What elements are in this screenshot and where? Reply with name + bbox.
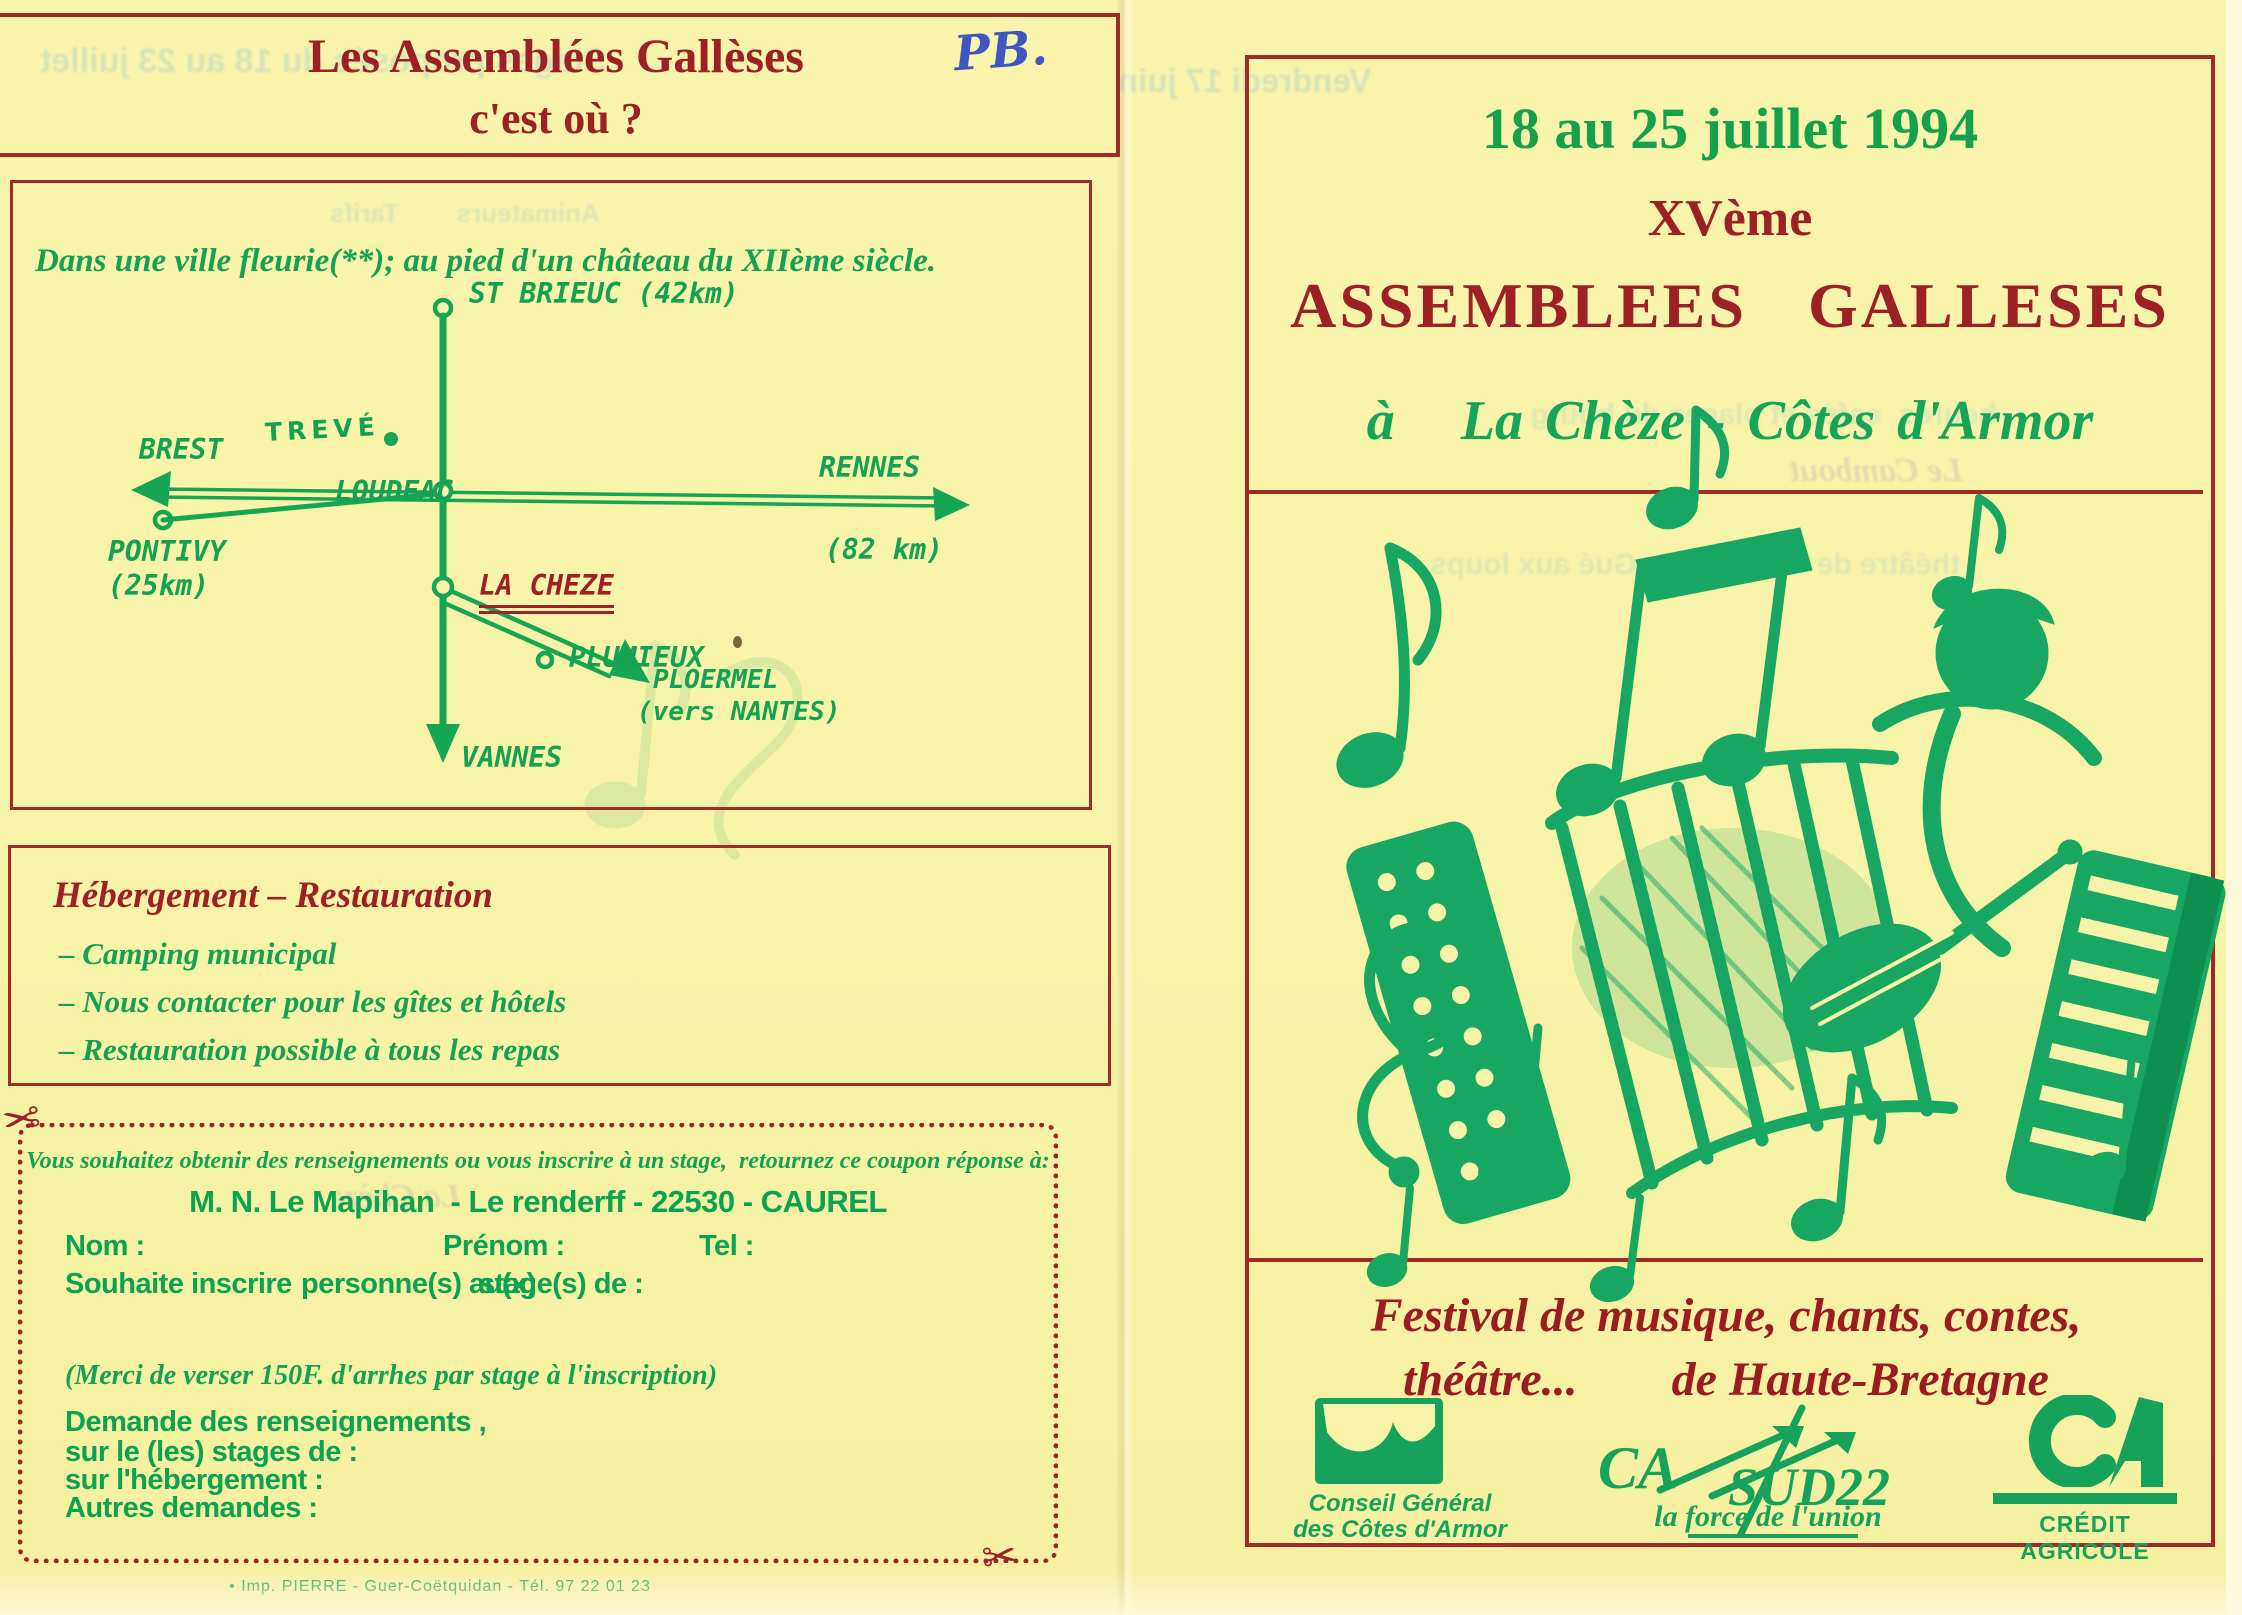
festival-title: ASSEMBLEES GALLESES — [1249, 269, 2211, 343]
hebergement-title: Hébergement – Restauration — [53, 874, 493, 917]
map-label-pontivy-distance: (25km) — [108, 569, 209, 602]
hebergement-item: – Nous contacter pour les gîtes et hôtel… — [59, 984, 566, 1020]
page-subtitle: c'est où ? — [0, 93, 1116, 144]
title-box: Les Assemblées Gallèses c'est où ? PB. — [0, 13, 1120, 157]
credit-agricole-bar — [1993, 1493, 2177, 1504]
accordion-music-illustration — [1252, 428, 2210, 1316]
map-arrowheads — [131, 471, 970, 763]
map-label-rennes: RENNES — [819, 451, 920, 484]
coupon-field-prenom: Prénom : — [443, 1230, 565, 1263]
map-label-ploermel: PLOERMEL — [653, 665, 778, 695]
music-note-icon — [1329, 548, 1436, 797]
coupon-arrhes-note: (Merci de verser 150F. d'arrhes par stag… — [65, 1360, 717, 1392]
coupon-autres-demandes: Autres demandes : — [65, 1492, 318, 1525]
musician-figure — [1880, 589, 2094, 948]
map-label-rennes-distance: (82 km) — [825, 533, 943, 566]
map-label-treve: TREVÉ — [264, 412, 380, 447]
map-label-la-cheze: LA CHEZE — [479, 569, 614, 608]
capsud-underline — [1688, 1534, 1858, 1538]
map-label-st-brieuc: ST BRIEUC (42km) — [469, 277, 739, 310]
credit-agricole-icon — [2005, 1395, 2165, 1487]
conseil-general-logo: Conseil Général des Côtes d'Armor — [1285, 1398, 1515, 1543]
music-note-icon — [1363, 1188, 1411, 1291]
treve-town-dot — [384, 432, 398, 446]
handwritten-initials: PB. — [952, 20, 1049, 82]
conseil-general-icon — [1315, 1398, 1443, 1484]
music-note-icon — [1641, 410, 1725, 536]
scanned-festival-flyer: Stages proposés du 18 au 23 juillet Vend… — [0, 0, 2242, 1615]
coupon-field-tel: Tel : — [699, 1230, 754, 1263]
credit-agricole-logo: CRÉDIT AGRICOLE — [1975, 1395, 2195, 1540]
festival-tagline-1: Festival de musique, chants, contes, — [1245, 1288, 2207, 1343]
conseil-general-line1: Conseil Général — [1285, 1490, 1515, 1518]
page-title: Les Assemblées Gallèses — [0, 29, 1116, 84]
coupon-intro: Vous souhaitez obtenir des renseignement… — [23, 1148, 1053, 1175]
scan-edge-bottom — [0, 1568, 2242, 1615]
fold-crease — [1116, 0, 1134, 1615]
capsud-tagline: la force de l'union — [1598, 1500, 1938, 1534]
map-label-pontivy: PONTIVY — [108, 535, 226, 568]
map-label-ploermel-sub: (vers NANTES) — [637, 697, 841, 727]
credit-agricole-label: CRÉDIT AGRICOLE — [1975, 1511, 2195, 1565]
festival-dates: 18 au 25 juillet 1994 — [1249, 95, 2211, 162]
coupon-box: Vous souhaitez obtenir des renseignement… — [18, 1123, 1058, 1563]
map-label-brest: BREST — [139, 433, 223, 466]
coupon-inscrire-label: Souhaite inscrire — [65, 1268, 292, 1301]
paper-fleck — [733, 636, 742, 648]
festival-edition: XVème — [1249, 189, 2211, 248]
coupon-demande-label: Demande des renseignements , — [65, 1406, 486, 1439]
coupon-stages-label: stage(s) de : — [479, 1268, 643, 1301]
capsud-ca-text: CA — [1598, 1434, 1678, 1503]
map-box: Dans une ville fleurie(**); au pied d'un… — [10, 180, 1092, 810]
map-label-vannes: VANNES — [461, 741, 562, 774]
map-label-loudeac: LOUDEAC — [335, 475, 453, 508]
hebergement-box: Hébergement – Restauration – Camping mun… — [8, 845, 1111, 1086]
hebergement-item: – Camping municipal — [59, 936, 336, 972]
coupon-field-nom: Nom : — [65, 1230, 145, 1263]
conseil-general-line2: des Côtes d'Armor — [1285, 1516, 1515, 1544]
scan-edge-right — [2226, 0, 2242, 1615]
coupon-address: M. N. Le Mapihan - Le renderff - 22530 -… — [23, 1184, 1053, 1220]
hebergement-item: – Restauration possible à tous les repas — [59, 1032, 560, 1068]
